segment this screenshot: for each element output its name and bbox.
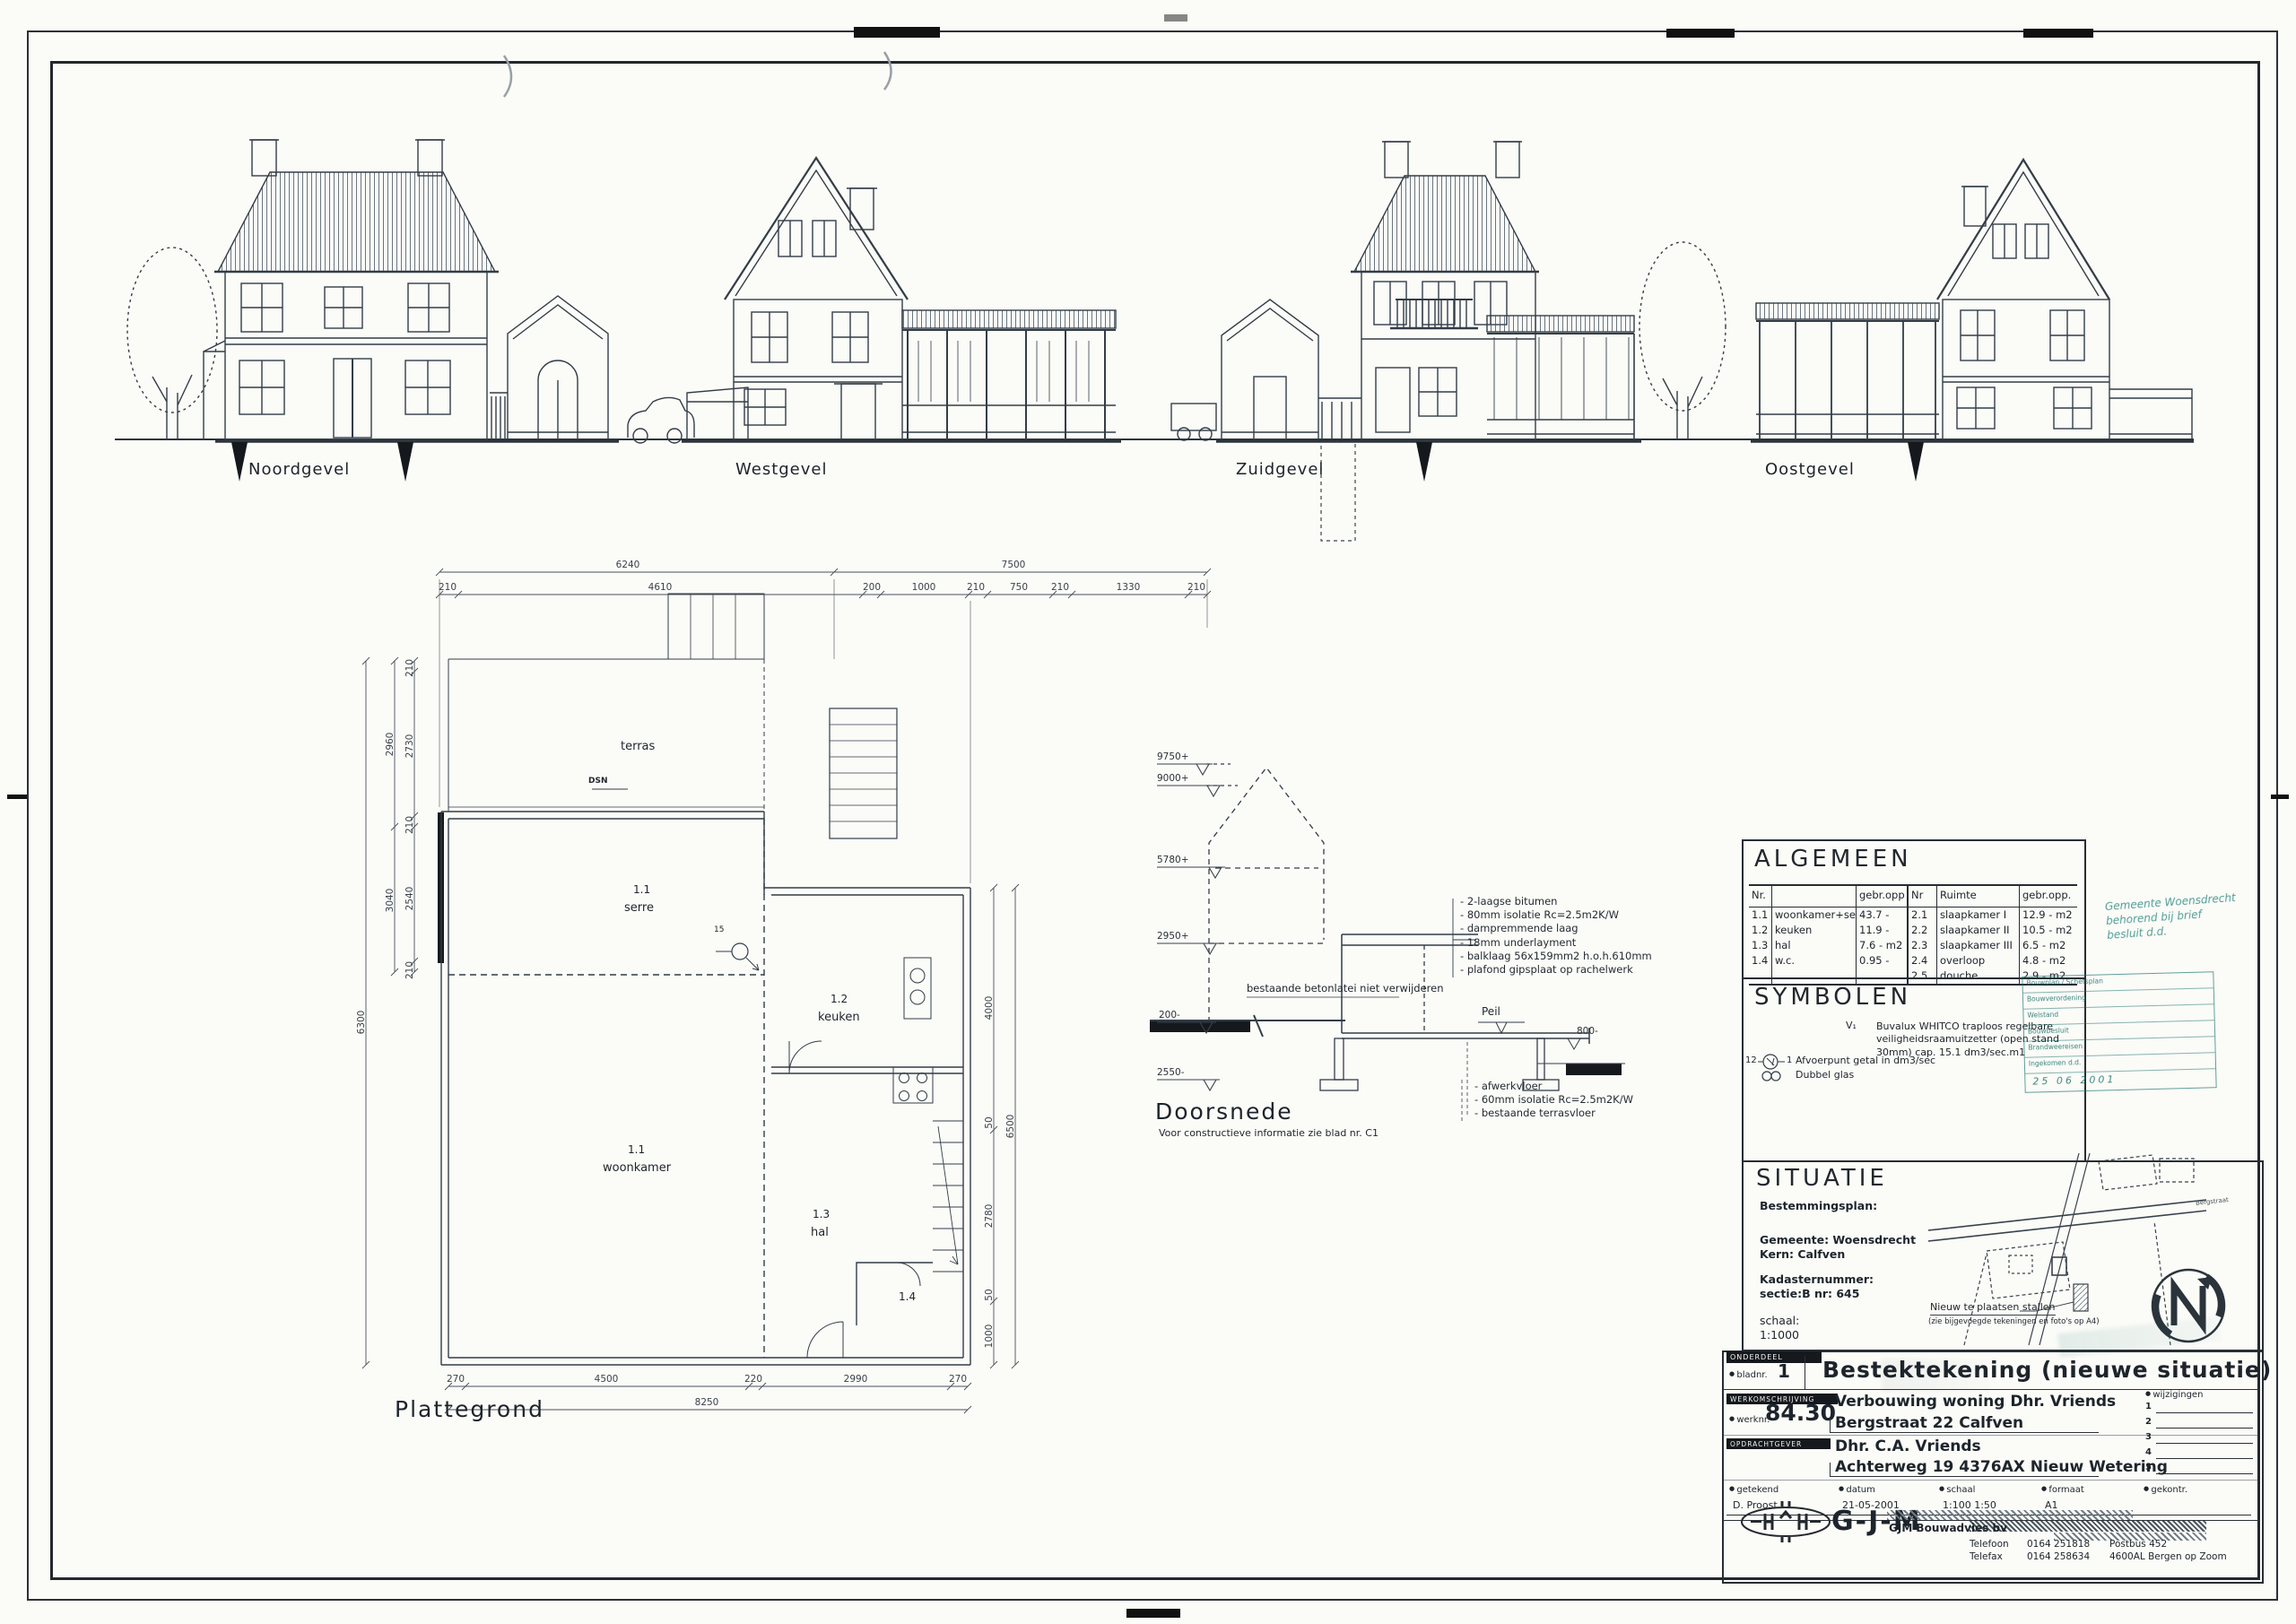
- cell: 1.3: [1749, 938, 1772, 953]
- level-mark: 9000+: [1157, 773, 1189, 784]
- wijziging-line: [2156, 1473, 2253, 1474]
- kadaster-label: Kadasternummer:: [1760, 1273, 1874, 1286]
- col-header: [1772, 886, 1857, 908]
- level-mark: 2550-: [1157, 1067, 1185, 1078]
- telefoon-label: Telefoon: [1970, 1539, 2009, 1550]
- symbol-v1: V₁: [1846, 1020, 1857, 1032]
- telefax-label: Telefax: [1970, 1551, 2003, 1562]
- cell: 2.1: [1909, 908, 1937, 923]
- municipal-stamp-text: Gemeente Woensdrecht behorend bij brief …: [2104, 890, 2238, 943]
- label-westgevel: Westgevel: [735, 461, 827, 480]
- situatie-note2: (zie bijgevoegde tekeningen en foto's op…: [1928, 1318, 2100, 1327]
- situatie-note1: Nieuw te plaatsen stallen: [1930, 1302, 2056, 1316]
- level-mark-right: 800-: [1577, 1026, 1598, 1037]
- room-hal-nr: 1.3: [813, 1209, 830, 1221]
- cell: keuken: [1772, 923, 1857, 938]
- dim: 210: [1187, 582, 1205, 593]
- titleblock-divider: [1722, 1480, 2260, 1481]
- cell: 7.6 - m2: [1857, 938, 1909, 953]
- algemeen-table: Nr. gebr.opp Nr Ruimte gebr.opp. 1.1 woo…: [1749, 884, 2077, 986]
- note-line: 2-laagse bitumen: [1460, 895, 1652, 908]
- symbol-glas-text: Dubbel glas: [1796, 1070, 1854, 1081]
- field-line: [2139, 1515, 2251, 1515]
- cell: woonkamer+serre: [1772, 908, 1857, 923]
- fold-mark: [7, 795, 27, 799]
- doorsnede-mid-note: bestaande betonlatei niet verwijderen: [1247, 983, 1444, 994]
- opdrachtgever-bar: OPDRACHTGEVER: [1726, 1438, 1831, 1449]
- dim: 2540: [404, 887, 415, 911]
- company-name: GJM Bouwadvies bv: [1889, 1523, 2007, 1535]
- situatie-schaal-value: 1:1000: [1760, 1329, 1799, 1342]
- dim: 2780: [984, 1204, 995, 1229]
- cell: 12.9 - m2: [2020, 908, 2077, 923]
- dim: 6300: [356, 1011, 367, 1035]
- cell: 2.2: [1909, 923, 1937, 938]
- tick: [1830, 1419, 1831, 1433]
- dim: 2960: [385, 733, 396, 757]
- col-header: gebr.opp.: [2020, 886, 2077, 908]
- dim: 4500: [595, 1374, 619, 1385]
- fold-mark: [2271, 795, 2289, 799]
- roof-buildup-notes: 2-laagse bitumen 80mm isolatie Rc=2.5m2K…: [1460, 895, 1652, 977]
- schaal-label: schaal: [1939, 1485, 1975, 1496]
- dim: 200: [863, 582, 881, 593]
- wijziging-line: [2156, 1412, 2253, 1413]
- dim: 4000: [984, 996, 995, 1020]
- note-line: 80mm isolatie Rc=2.5m2K/W: [1460, 908, 1652, 922]
- onderdeel-bar: ONDERDEEL: [1726, 1351, 1822, 1363]
- kern-label: Kern: Calfven: [1760, 1248, 1845, 1261]
- fold-mark: [1126, 1609, 1180, 1618]
- floor-buildup-notes: afwerkvloer 60mm isolatie Rc=2.5m2K/W be…: [1474, 1080, 1633, 1121]
- dim: 1330: [1117, 582, 1141, 593]
- city-value: 4600AL Bergen op Zoom: [2109, 1551, 2227, 1562]
- symbol-afvoer-post: 1: [1787, 1055, 1792, 1066]
- dim: 270: [949, 1374, 967, 1385]
- telefoon-value: 0164 251818: [2027, 1539, 2090, 1550]
- wijziging-nr: 3: [2145, 1432, 2152, 1443]
- underline: [1830, 1432, 2099, 1433]
- bladnr-value: 1: [1778, 1361, 1790, 1382]
- col-header: Nr.: [1749, 886, 1772, 908]
- algemeen-title: ALGEMEEN: [1754, 847, 1912, 873]
- dim: 6240: [616, 560, 640, 570]
- dim: 210: [967, 582, 985, 593]
- wijziging-line: [2156, 1428, 2253, 1429]
- cell: slaapkamer II: [1937, 923, 2020, 938]
- plattegrond-title: Plattegrond: [395, 1397, 544, 1423]
- title-cell-border: [1805, 1356, 1805, 1390]
- bestemmingsplan-label: Bestemmingsplan:: [1760, 1200, 1877, 1212]
- cell: slaapkamer I: [1937, 908, 2020, 923]
- symbol-afvoer-text: Afvoerpunt getal in dm3/sec: [1796, 1055, 1935, 1067]
- note-line: 60mm isolatie Rc=2.5m2K/W: [1474, 1093, 1633, 1107]
- level-mark: 2950+: [1157, 931, 1189, 942]
- cell: slaapkamer III: [1937, 938, 2020, 953]
- dim: 220: [744, 1374, 762, 1385]
- dim: 750: [1010, 582, 1028, 593]
- note-line: 18mm underlayment: [1460, 936, 1652, 950]
- cell: 1.4: [1749, 953, 1772, 968]
- cell: 43.7 - m2: [1857, 908, 1909, 923]
- dim: 270: [447, 1374, 465, 1385]
- room-hal-name: hal: [811, 1227, 829, 1240]
- wijziging-line: [2156, 1458, 2253, 1459]
- datum-label: datum: [1839, 1485, 1875, 1496]
- cell: 6.5 - m2: [2020, 938, 2077, 953]
- cell: 4.8 - m2: [2020, 953, 2077, 968]
- symbolen-title: SYMBOLEN: [1754, 985, 1911, 1012]
- municipal-stamp-table: Bouwplan / Schetsplan Bouwverordening We…: [2022, 971, 2216, 1093]
- symbol-afvoer-pre: 12: [1745, 1055, 1757, 1066]
- note-line: afwerkvloer: [1474, 1080, 1633, 1093]
- cell: 2.4: [1909, 953, 1937, 968]
- dsn-label: DSN: [588, 777, 608, 786]
- underline: [1830, 1476, 2099, 1477]
- dim: 210: [404, 816, 415, 834]
- titleblock-divider: [1722, 1435, 2260, 1436]
- room-woonkamer-nr: 1.1: [628, 1144, 645, 1157]
- dim: 50: [984, 1116, 995, 1128]
- dim: 1000: [984, 1324, 995, 1349]
- level-mark: 9750+: [1157, 751, 1189, 762]
- doorsnede-subtitle: Voor constructieve informatie zie blad n…: [1159, 1128, 1378, 1140]
- wijziging-nr: 1: [2145, 1402, 2152, 1412]
- note-line: plafond gipsplaat op rachelwerk: [1460, 963, 1652, 977]
- terras-label: terras: [621, 741, 655, 754]
- stamp-date: 25 06 2001: [2025, 1069, 2215, 1092]
- drawing-title: Bestektekening (nieuwe situatie): [1822, 1358, 2272, 1384]
- getekend-label: getekend: [1729, 1485, 1779, 1496]
- cell: 2.3: [1909, 938, 1937, 953]
- werknr-label: werknr.: [1729, 1415, 1770, 1426]
- gemeente-label: Gemeente: Woensdrecht: [1760, 1234, 1916, 1246]
- note-line: balklaag 56x159mm2 h.o.h.610mm: [1460, 950, 1652, 963]
- dim: 2730: [404, 734, 415, 759]
- cell: 10.5 - m2: [2020, 923, 2077, 938]
- drawing-sheet: Noordgevel Westgevel Zuidgevel Oostgevel…: [0, 0, 2296, 1624]
- telefax-value: 0164 258634: [2027, 1551, 2090, 1562]
- col-header: Ruimte: [1937, 886, 2020, 908]
- fold-mark: [1666, 29, 1735, 38]
- dim: 210: [404, 659, 415, 677]
- tick: [1830, 1463, 1831, 1477]
- room-keuken-name: keuken: [818, 1012, 860, 1025]
- room-keuken-nr: 1.2: [831, 994, 848, 1006]
- wijziging-nr: 4: [2145, 1447, 2152, 1458]
- onderdeel-label: ONDERDEEL: [1730, 1353, 1783, 1361]
- dim: 7500: [1002, 560, 1026, 570]
- dim: 210: [439, 582, 457, 593]
- dim: 210: [404, 961, 415, 979]
- opdrachtgever-line2: Achterweg 19 4376AX Nieuw Wetering: [1835, 1459, 2168, 1477]
- cell: 1.1: [1749, 908, 1772, 923]
- formaat-label: formaat: [2041, 1485, 2084, 1496]
- fold-mark: [2023, 29, 2093, 38]
- dim: 8250: [695, 1397, 719, 1408]
- cell: hal: [1772, 938, 1857, 953]
- hatch-bar: [1887, 1510, 2133, 1520]
- getekend-value: D. Proost: [1733, 1500, 1778, 1512]
- dim: 1000: [912, 582, 936, 593]
- wijziging-nr: 5: [2145, 1463, 2152, 1473]
- werk-line1: Verbouwing woning Dhr. Vriends: [1835, 1394, 2116, 1411]
- kadaster-value: sectie:B nr: 645: [1760, 1288, 1859, 1300]
- werknr-value: 84.30: [1765, 1401, 1836, 1427]
- wijziging-line: [2156, 1443, 2253, 1444]
- dim: 2990: [844, 1374, 868, 1385]
- level-mark: 200-: [1159, 1010, 1180, 1020]
- col-header: Nr: [1909, 886, 1937, 908]
- afvoer-value-label: 15: [714, 925, 724, 934]
- fold-mark: [1164, 14, 1187, 22]
- label-noordgevel: Noordgevel: [248, 461, 350, 480]
- dim: 6500: [1005, 1115, 1016, 1139]
- dim: 3040: [385, 889, 396, 913]
- opdrachtgever-label: OPDRACHTGEVER: [1730, 1440, 1802, 1448]
- dim: 4610: [648, 582, 673, 593]
- room-woonkamer-name: woonkamer: [603, 1162, 671, 1176]
- opdrachtgever-line1: Dhr. C.A. Vriends: [1835, 1438, 1981, 1456]
- note-line: bestaande terrasvloer: [1474, 1107, 1633, 1120]
- dim: 210: [1051, 582, 1069, 593]
- bladnr-label: bladnr.: [1729, 1370, 1768, 1381]
- room-wc-nr: 1.4: [899, 1291, 916, 1304]
- note-line: dampremmende laag: [1460, 922, 1652, 935]
- col-header: gebr.opp: [1857, 886, 1909, 908]
- situatie-schaal-label: schaal:: [1760, 1315, 1799, 1327]
- cell: w.c.: [1772, 953, 1857, 968]
- room-serre-nr: 1.1: [633, 884, 650, 897]
- peil-label: Peil: [1482, 1006, 1500, 1019]
- label-zuidgevel: Zuidgevel: [1236, 461, 1324, 480]
- doorsnede-title: Doorsnede: [1155, 1099, 1293, 1125]
- wijzigingen-label: wijzigingen: [2145, 1390, 2203, 1401]
- werk-line2: Bergstraat 22 Calfven: [1835, 1415, 2023, 1433]
- cell: 0.95 - m2: [1857, 953, 1909, 968]
- cell: 11.9 - m2: [1857, 923, 1909, 938]
- level-mark: 5780+: [1157, 855, 1189, 865]
- fold-mark: [854, 27, 940, 38]
- postbus-value: Postbus 452: [2109, 1539, 2167, 1550]
- room-serre-name: serre: [624, 902, 654, 916]
- label-oostgevel: Oostgevel: [1765, 461, 1855, 480]
- wijziging-nr: 2: [2145, 1417, 2152, 1428]
- situatie-title: SITUATIE: [1756, 1166, 1888, 1193]
- cell: 1.2: [1749, 923, 1772, 938]
- cell: overloop: [1937, 953, 2020, 968]
- gekontr-label: gekontr.: [2144, 1485, 2187, 1496]
- dim: 50: [984, 1289, 995, 1300]
